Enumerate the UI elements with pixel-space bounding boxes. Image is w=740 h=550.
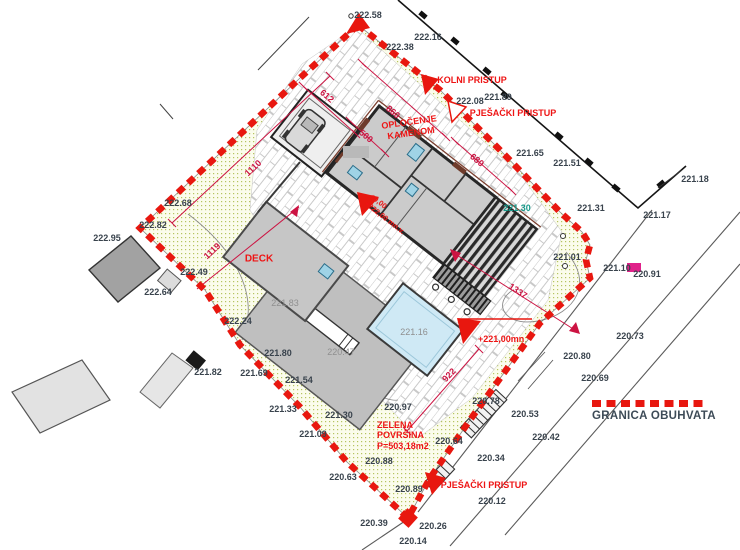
neighbour-building-west	[89, 236, 160, 302]
neighbour-building-left	[140, 353, 193, 408]
boundary-bump-structure	[158, 269, 181, 292]
boundary-north-arrow	[346, 13, 370, 34]
site-plan: KOLNI PRISTUP PJEŠAČKI PRISTUP OPLOČENJE…	[0, 0, 740, 550]
magenta-survey-marker	[627, 263, 641, 272]
paving-detail-slab	[343, 146, 369, 158]
neighbour-building-southwest	[12, 360, 110, 433]
site-plan-drawing	[0, 0, 740, 550]
